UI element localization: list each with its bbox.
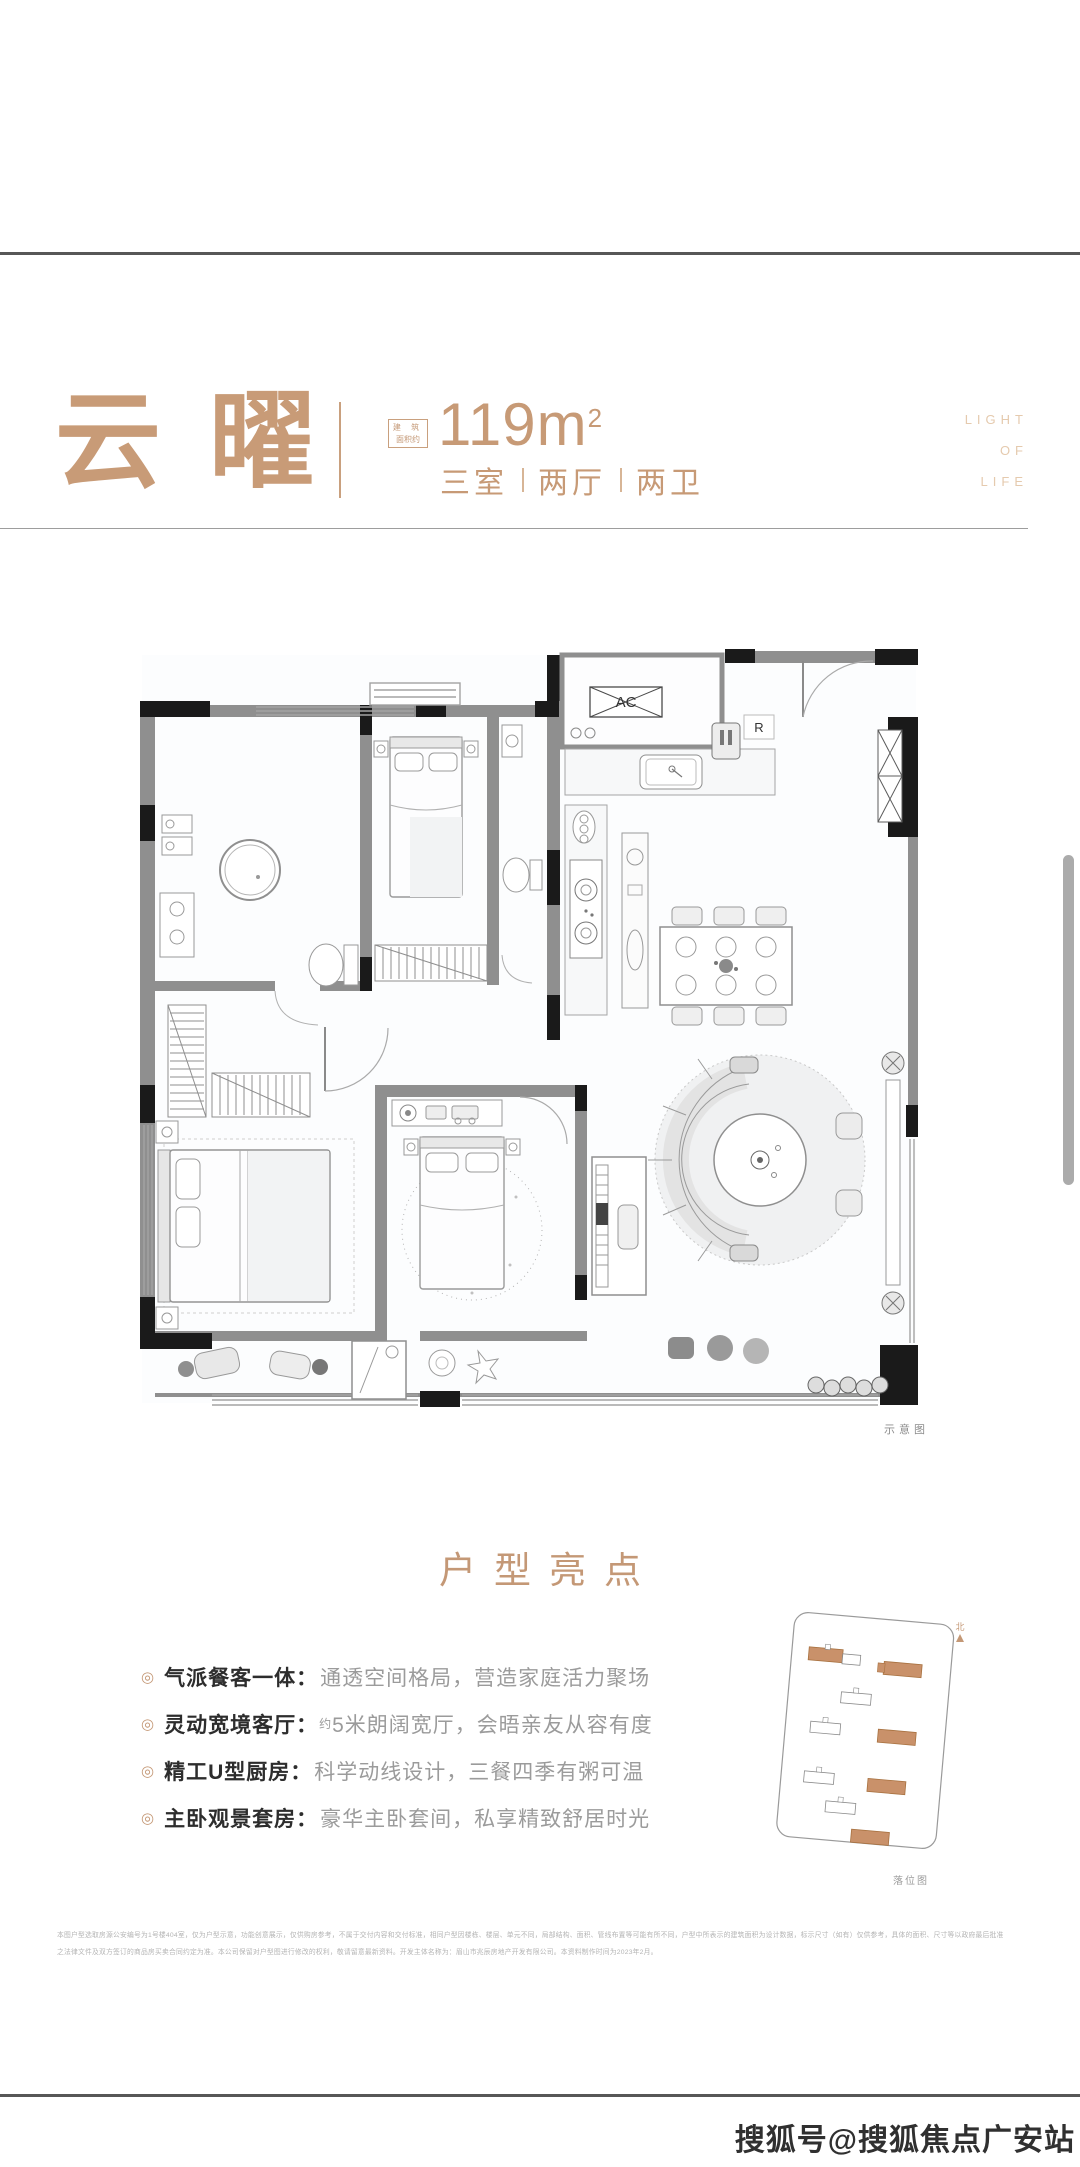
header-bottom-line — [0, 528, 1028, 529]
area-label-line2: 面积约 — [389, 434, 427, 446]
highlight-label: 气派餐客一体： — [164, 1662, 318, 1692]
highlight-label: 主卧观景套房： — [164, 1803, 318, 1833]
area-label-line1: 建 筑 — [389, 422, 427, 434]
piano — [592, 1157, 646, 1295]
dining-set — [660, 907, 792, 1025]
pantry-cabinet — [622, 833, 648, 1008]
bullseye-icon: ◎ — [141, 1809, 154, 1827]
slogan-line2: OF — [918, 435, 1028, 466]
compass-label: 北 — [955, 1622, 964, 1632]
ac-label: AC — [616, 694, 637, 711]
highlights-list: ◎ 气派餐客一体： 通透空间格局，营造家庭活力聚场 ◎ 灵动宽境客厅： 约 5米… — [141, 1653, 653, 1841]
slogan: LIGHT OF LIFE — [918, 404, 1028, 497]
top-divider-line — [0, 252, 1080, 255]
highlight-label: 灵动宽境客厅： — [164, 1709, 318, 1739]
highlight-item: ◎ 主卧观景套房： 豪华主卧套间，私享精致舒居时光 — [141, 1794, 653, 1841]
slogan-line1: LIGHT — [918, 404, 1028, 435]
bullseye-icon: ◎ — [141, 1715, 154, 1733]
area-label-box: 建 筑 面积约 — [388, 419, 428, 448]
rooms-bedrooms: 三室 — [440, 458, 508, 502]
scrollbar-thumb[interactable] — [1063, 855, 1074, 1185]
unit-title: 云曜 — [55, 386, 363, 498]
highlight-item: ◎ 灵动宽境客厅： 约 5米朗阔宽厅，会晤亲友从容有度 — [141, 1700, 653, 1747]
rooms-living: 两厅 — [538, 458, 606, 502]
rooms-separator — [620, 468, 622, 492]
disclaimer-line2: 之法律文件及双方签订的商品房买卖合同约定为准。本公司保留对户型图进行修改的权利，… — [57, 1946, 1037, 1956]
highlight-desc: 豪华主卧套间，私享精致舒居时光 — [320, 1803, 650, 1833]
watermark: 搜狐号@搜狐焦点广安站 — [735, 2115, 1075, 2159]
area-superscript: 2 — [588, 403, 603, 433]
bullseye-icon: ◎ — [141, 1668, 154, 1686]
fridge-label: R — [754, 720, 763, 735]
highlights-title: 户型亮点 — [0, 1540, 1080, 1594]
ac-closet: AC — [562, 655, 722, 747]
shaft-hatch — [878, 730, 902, 822]
area-number: 119m — [438, 391, 588, 458]
siteplan-caption: 落位图 — [893, 1872, 929, 1887]
header-vertical-divider — [339, 402, 341, 498]
slogan-line3: LIFE — [918, 466, 1028, 497]
rooms-separator — [522, 468, 524, 492]
bottom-divider-line — [0, 2094, 1080, 2097]
siteplan-boundary — [776, 1611, 955, 1849]
floorplan-caption: 示意图 — [884, 1421, 929, 1437]
highlight-desc: 科学动线设计，三餐四季有粥可温 — [314, 1756, 644, 1786]
floorplan-drawing: AC R — [120, 645, 920, 1410]
highlight-prefix: 约 — [319, 1715, 331, 1732]
highlight-desc: 5米朗阔宽厅，会晤亲友从容有度 — [332, 1709, 653, 1739]
bullseye-icon: ◎ — [141, 1762, 154, 1780]
bedroom2 — [374, 737, 478, 897]
highlight-item: ◎ 气派餐客一体： 通透空间格局，营造家庭活力聚场 — [141, 1653, 653, 1700]
rooms-baths: 两卫 — [636, 458, 704, 502]
highlight-item: ◎ 精工U型厨房： 科学动线设计，三餐四季有粥可温 — [141, 1747, 653, 1794]
rooms-summary: 三室 两厅 两卫 — [440, 458, 704, 502]
highlight-desc: 通透空间格局，营造家庭活力聚场 — [320, 1662, 650, 1692]
highlight-label: 精工U型厨房： — [164, 1756, 312, 1786]
compass-north-icon: 北 — [955, 1622, 964, 1642]
siteplan-drawing: 北 — [760, 1608, 980, 1888]
master-bedroom — [156, 1121, 354, 1329]
page: 云曜 建 筑 面积约 119m2 三室 两厅 两卫 LIGHT OF LIFE — [0, 0, 1080, 2167]
area-value: 119m2 — [438, 390, 603, 459]
disclaimer-line1: 本图户型选取房源公安编号为1号楼404室，仅为户型示意，功能创意展示，仅供购房参… — [57, 1929, 1037, 1939]
